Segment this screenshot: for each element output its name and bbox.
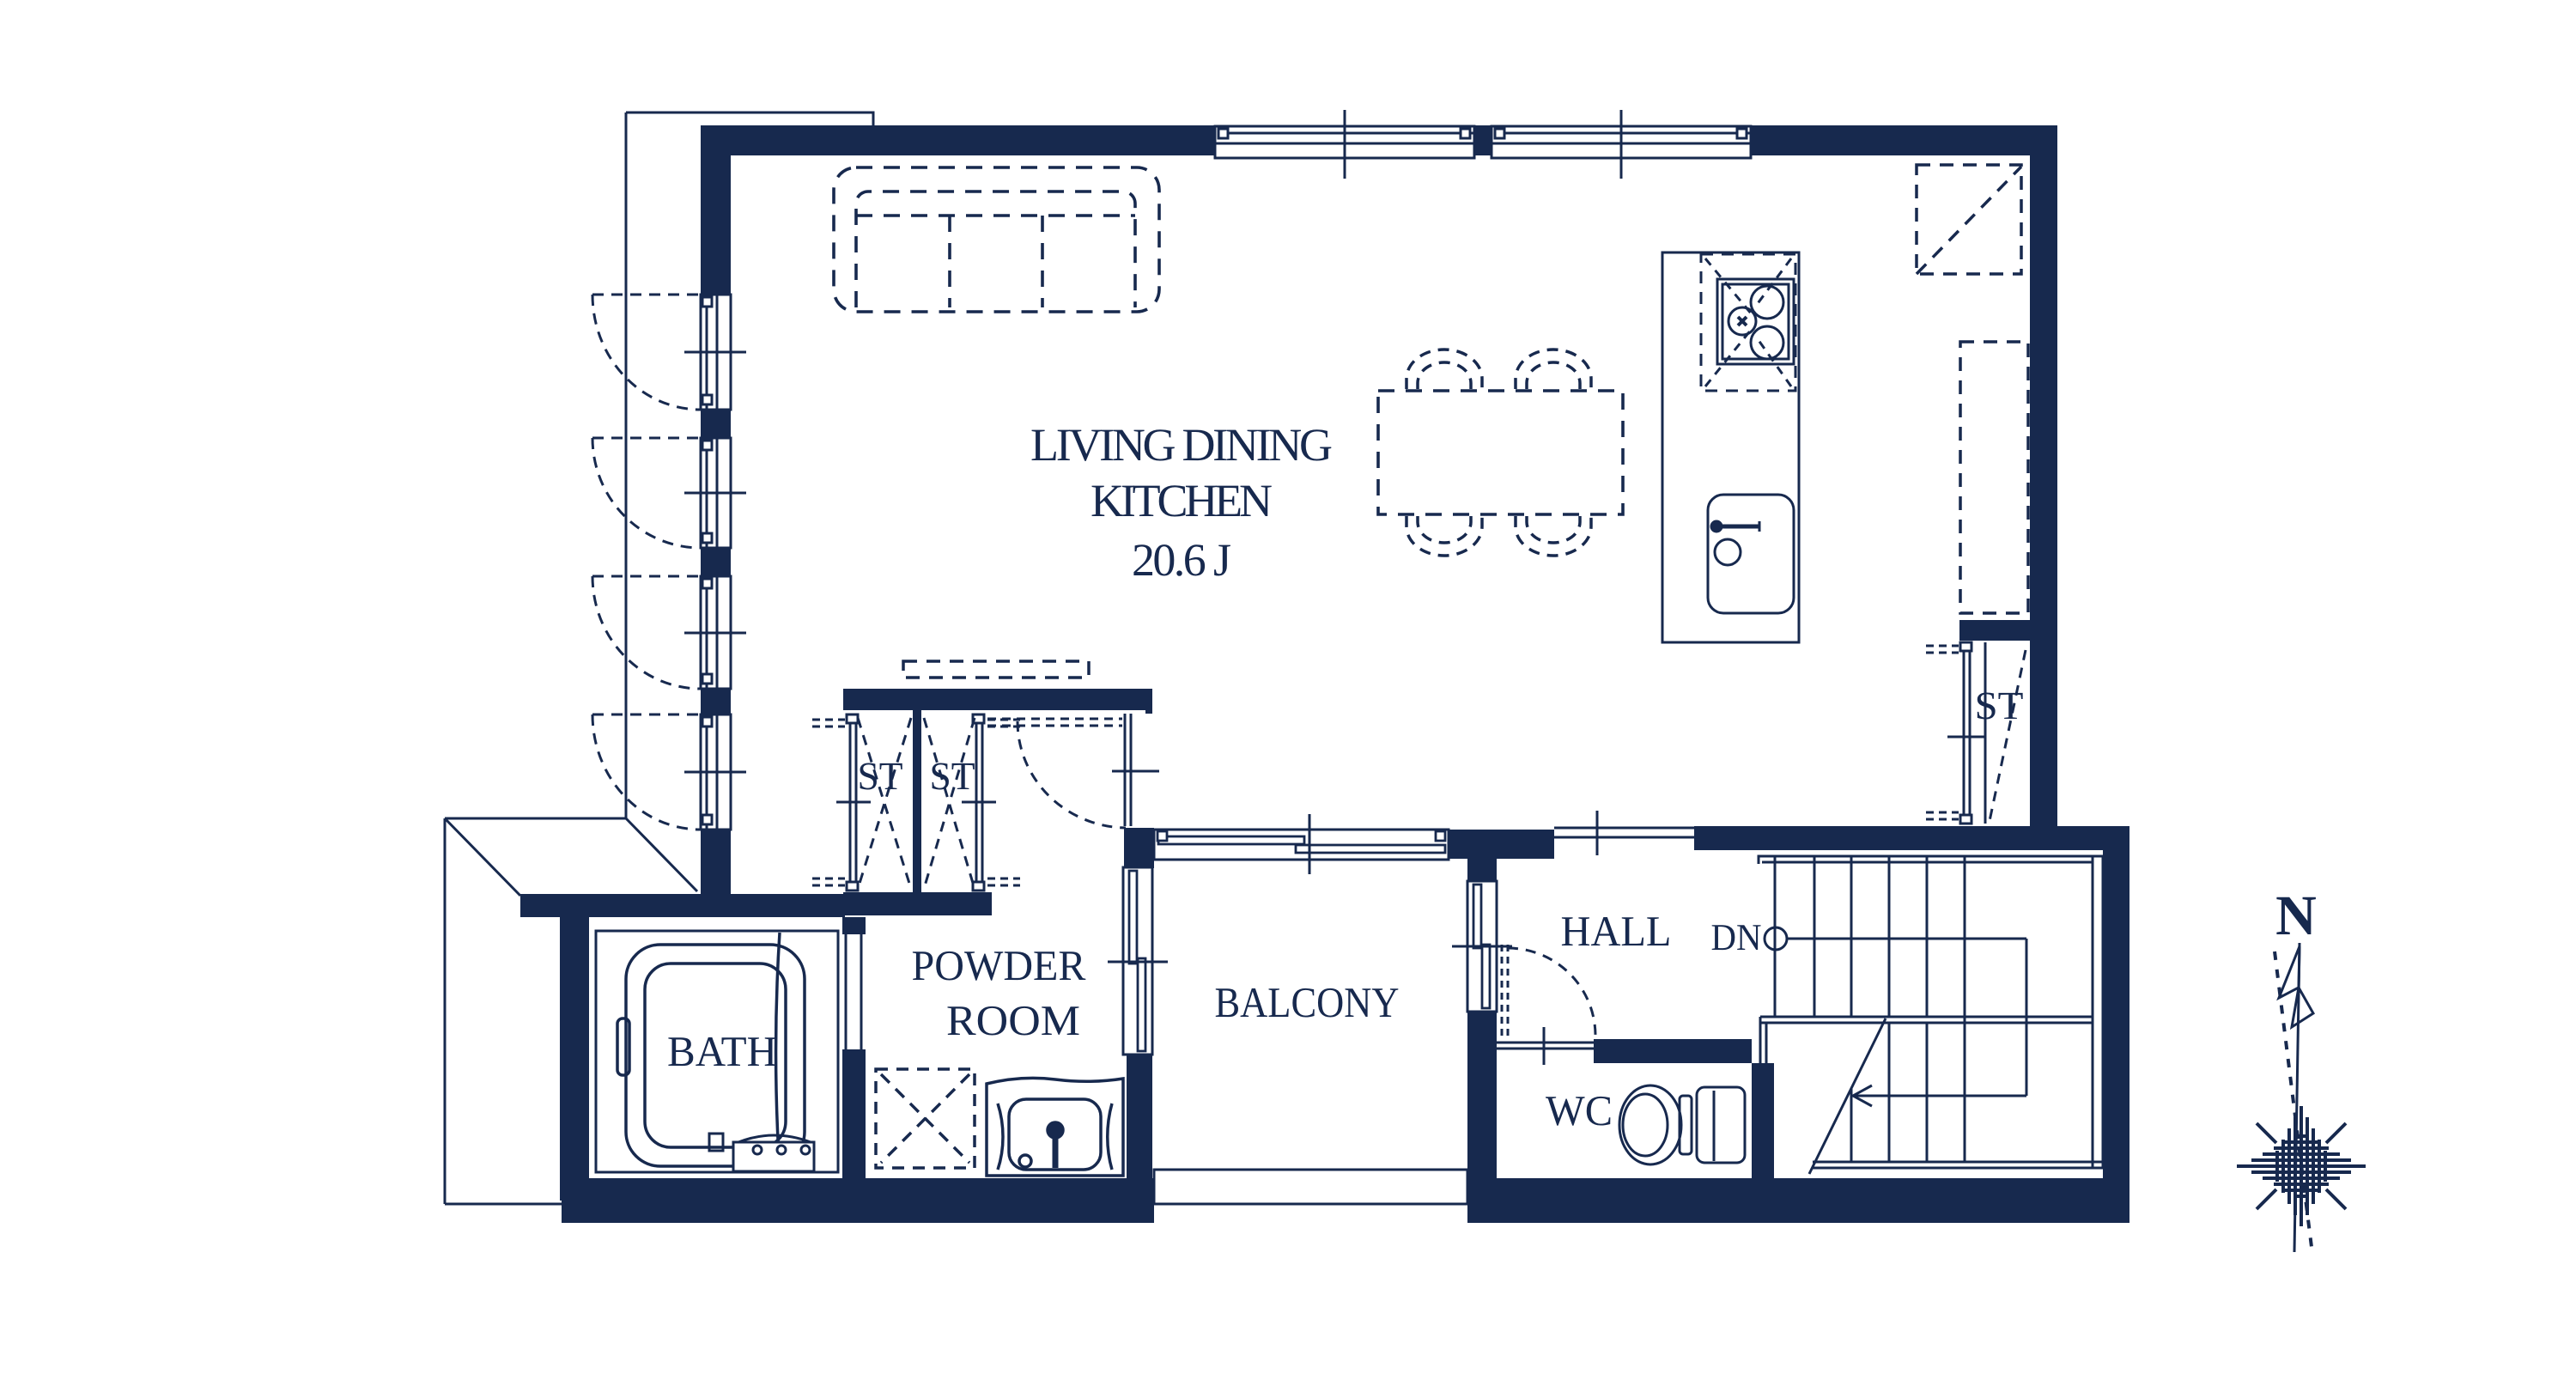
svg-text:DN: DN — [1711, 916, 1762, 958]
svg-text:BATH: BATH — [667, 1027, 777, 1075]
svg-text:LIVING DINING: LIVING DINING — [1030, 419, 1333, 471]
svg-text:BALCONY: BALCONY — [1215, 978, 1400, 1026]
svg-text:ST: ST — [930, 754, 975, 798]
svg-text:N: N — [2275, 885, 2317, 947]
svg-text:20.6 J: 20.6 J — [1132, 534, 1231, 586]
svg-text:ROOM: ROOM — [946, 996, 1080, 1044]
svg-text:POWDER: POWDER — [912, 941, 1087, 989]
svg-text:HALL: HALL — [1561, 907, 1672, 955]
svg-text:ST: ST — [1975, 684, 2024, 727]
svg-text:WC: WC — [1546, 1086, 1613, 1134]
svg-text:KITCHEN: KITCHEN — [1091, 475, 1273, 526]
svg-text:ST: ST — [858, 754, 903, 798]
